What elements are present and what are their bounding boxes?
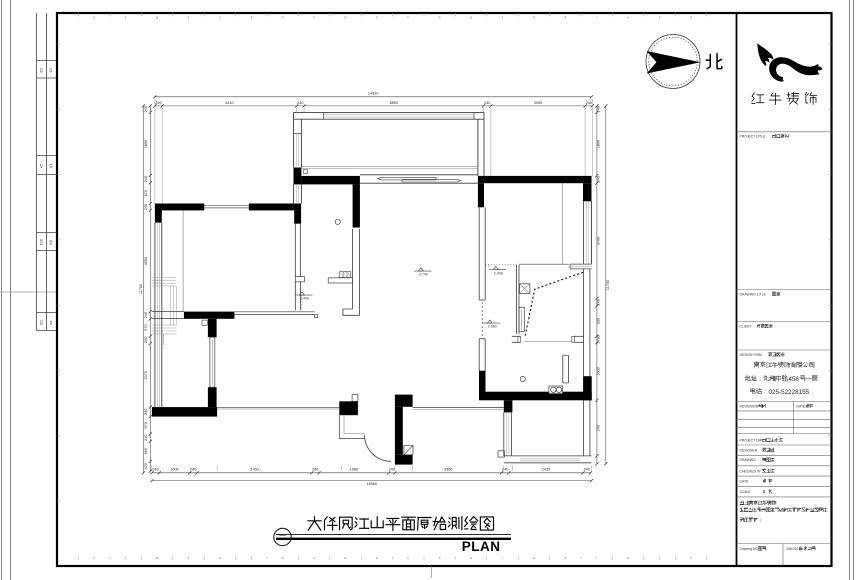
svg-text:1790: 1790 — [597, 335, 601, 343]
svg-text:A: A — [93, 16, 95, 20]
svg-text:H: H — [533, 556, 535, 560]
svg-text:H: H — [533, 16, 535, 20]
svg-text:320: 320 — [144, 463, 148, 469]
svg-text:DATE: DATE — [740, 479, 750, 483]
svg-text:DESIGNER: DESIGNER — [740, 448, 758, 452]
svg-text:A: A — [93, 556, 95, 560]
svg-text:240: 240 — [312, 467, 318, 471]
svg-text:CLIENT: CLIENT — [740, 325, 752, 329]
svg-text:PROJECT LITLE: PROJECT LITLE — [740, 135, 766, 139]
svg-text:2.400: 2.400 — [300, 297, 309, 301]
svg-text:240: 240 — [155, 101, 161, 105]
svg-text:240: 240 — [597, 106, 601, 112]
svg-text:F: F — [407, 556, 409, 560]
svg-text:6/2: 6/2 — [49, 68, 53, 73]
svg-text:2070: 2070 — [144, 371, 148, 379]
svg-text:240: 240 — [152, 467, 158, 471]
svg-text:240: 240 — [597, 176, 601, 182]
svg-text:4/1: 4/1 — [49, 164, 53, 169]
svg-text:240: 240 — [144, 204, 148, 210]
svg-text:2.408: 2.408 — [494, 271, 503, 275]
svg-text:Drawing NO: Drawing NO — [740, 547, 759, 551]
svg-text:PLAN: PLAN — [462, 539, 501, 554]
svg-text:6/8: 6/8 — [49, 240, 53, 245]
svg-text:4410: 4410 — [225, 101, 233, 105]
svg-text:B: B — [156, 556, 158, 560]
svg-text:2.360: 2.360 — [488, 325, 497, 329]
svg-text:240: 240 — [597, 425, 601, 431]
svg-text:240: 240 — [144, 106, 148, 112]
svg-text:240: 240 — [597, 299, 601, 305]
svg-text:DATE: DATE — [797, 405, 807, 409]
svg-text:458: 458 — [789, 376, 800, 383]
svg-text:4/5: 4/5 — [40, 164, 44, 169]
svg-text:1600: 1600 — [597, 367, 601, 375]
svg-text:PROJECT DIR: PROJECT DIR — [740, 438, 763, 442]
svg-text:570: 570 — [144, 422, 148, 428]
svg-text:930: 930 — [597, 318, 601, 324]
svg-text:240: 240 — [190, 467, 196, 471]
svg-text:DESIGN FIRM: DESIGN FIRM — [740, 353, 762, 357]
svg-text:8/2: 8/2 — [40, 320, 44, 325]
svg-text:5890: 5890 — [390, 101, 398, 105]
svg-text:240: 240 — [502, 467, 508, 471]
svg-text:240: 240 — [297, 101, 303, 105]
svg-text:240: 240 — [144, 434, 148, 440]
svg-text:14320: 14320 — [368, 92, 379, 96]
svg-text:CHECKED IN: CHECKED IN — [740, 469, 761, 473]
svg-text:B: B — [156, 16, 158, 20]
svg-text:1980: 1980 — [350, 467, 358, 471]
svg-text:SCALE: SCALE — [740, 490, 752, 494]
svg-text:240: 240 — [144, 409, 148, 415]
svg-text:F: F — [407, 16, 409, 20]
svg-text:3360: 3360 — [444, 467, 452, 471]
svg-text:3050: 3050 — [144, 257, 148, 265]
svg-text:DRAWING: DRAWING — [740, 458, 757, 462]
svg-text:670: 670 — [144, 190, 148, 196]
svg-text:240: 240 — [584, 467, 590, 471]
svg-text:025-52228155: 025-52228155 — [769, 389, 810, 396]
svg-text:570: 570 — [144, 324, 148, 330]
svg-text:240: 240 — [144, 176, 148, 182]
svg-text:1890: 1890 — [597, 140, 601, 148]
svg-text:a/k: a/k — [49, 320, 53, 325]
svg-text:DRAWING LITLE: DRAWING LITLE — [740, 293, 767, 297]
svg-text:1890: 1890 — [144, 140, 148, 148]
svg-text:660: 660 — [144, 448, 148, 454]
svg-text:E: E — [344, 556, 346, 560]
svg-text:240: 240 — [586, 101, 592, 105]
svg-text:2430: 2430 — [542, 467, 550, 471]
svg-text:11700: 11700 — [139, 284, 143, 294]
svg-text:3760: 3760 — [250, 467, 258, 471]
svg-text:2.740: 2.740 — [419, 273, 428, 277]
svg-text:3700: 3700 — [597, 237, 601, 245]
svg-text:32/8: 32/8 — [40, 239, 44, 245]
svg-text:E: E — [344, 16, 346, 20]
svg-text:240: 240 — [389, 467, 395, 471]
svg-text:240: 240 — [144, 312, 148, 318]
svg-text:3090: 3090 — [534, 101, 542, 105]
svg-text:REVISIONS: REVISIONS — [740, 405, 759, 409]
svg-text:240: 240 — [484, 101, 490, 105]
svg-text:6/5: 6/5 — [40, 68, 44, 73]
svg-text:JAN NO: JAN NO — [786, 547, 799, 551]
svg-text:11790: 11790 — [606, 280, 610, 290]
svg-text:240: 240 — [144, 337, 148, 343]
svg-text:14560: 14560 — [366, 482, 377, 486]
svg-text:1000: 1000 — [170, 467, 178, 471]
